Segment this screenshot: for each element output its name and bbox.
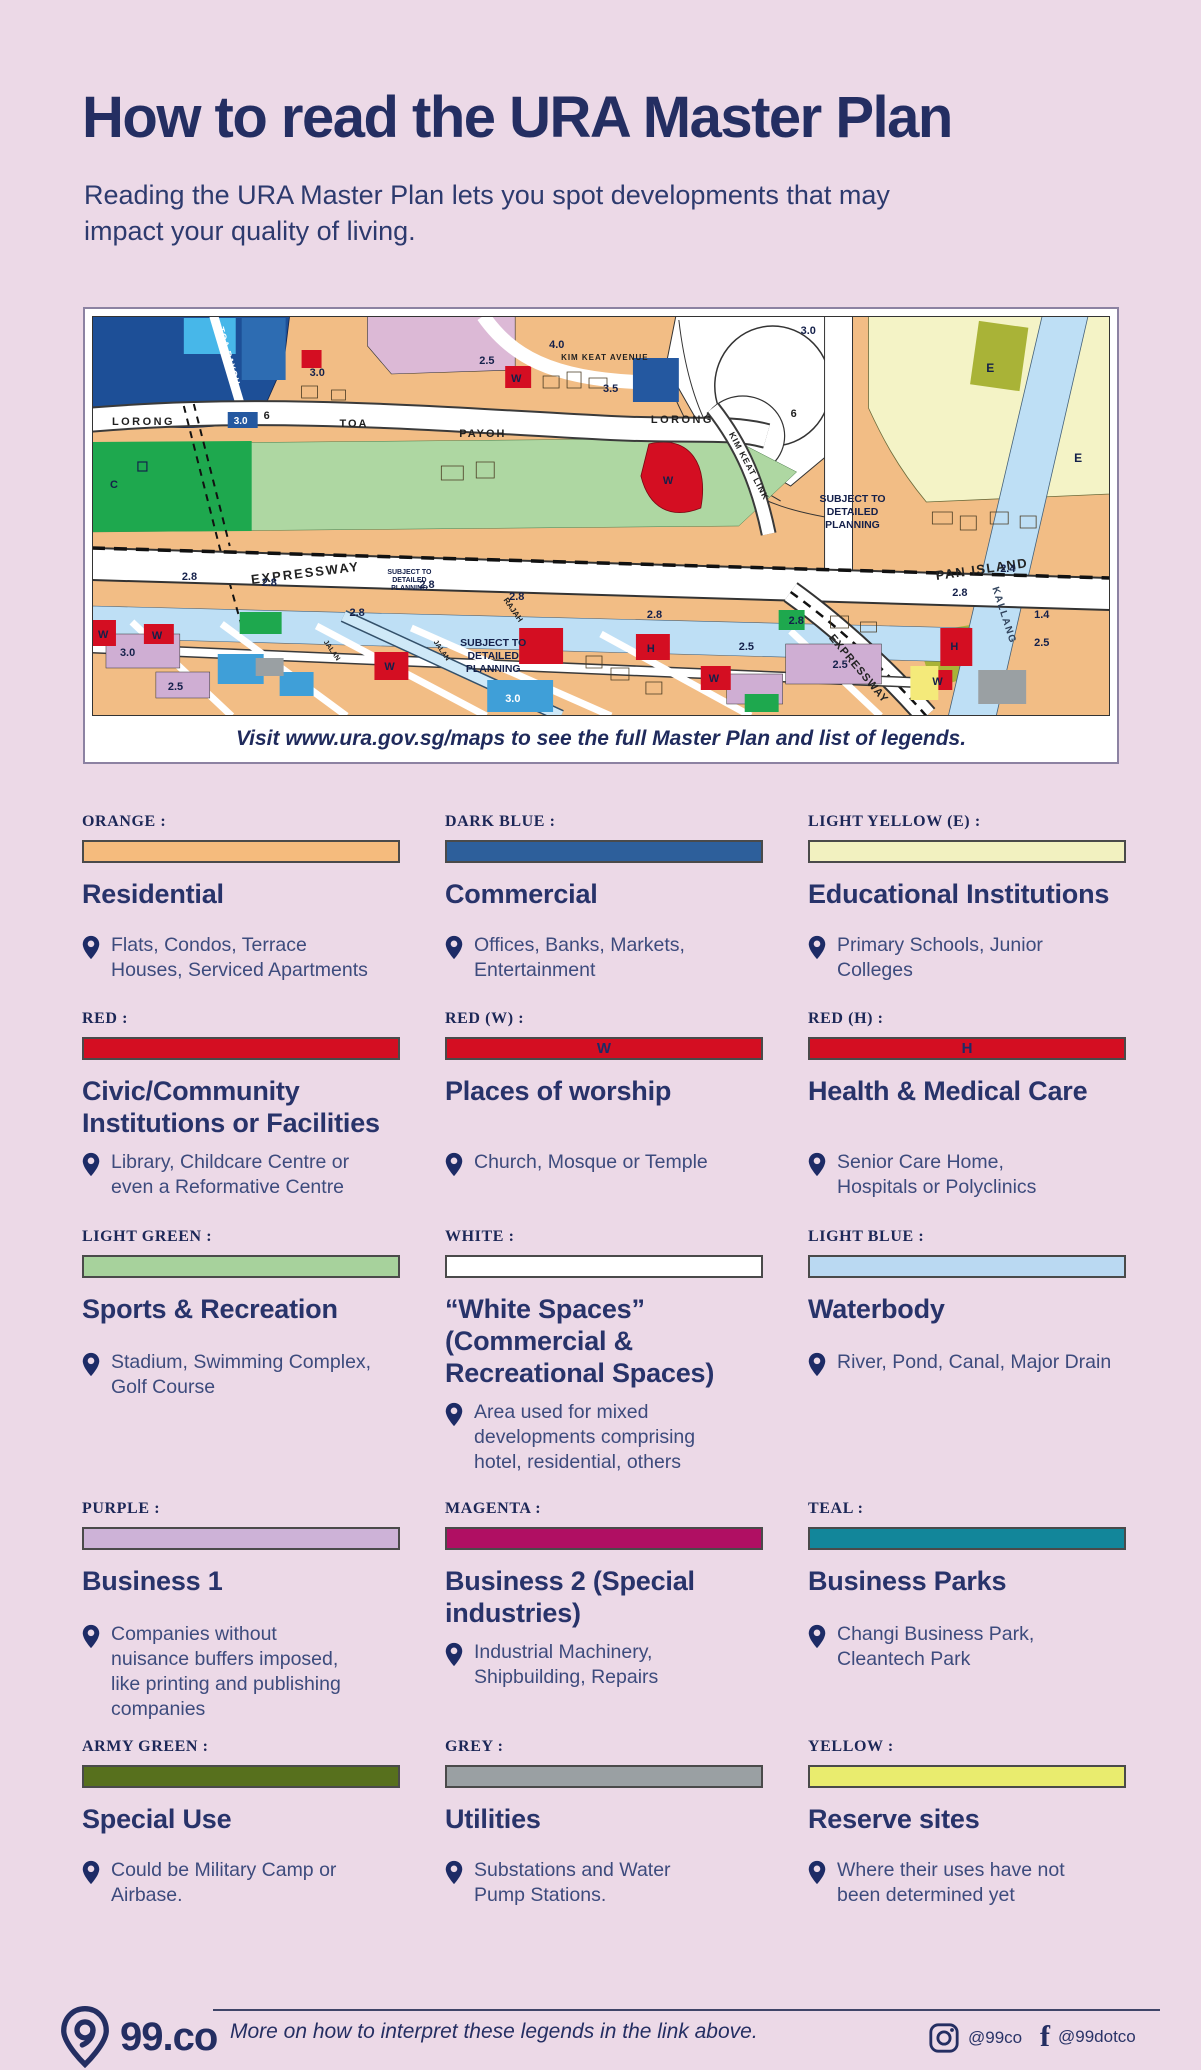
legend-item-description: Area used for mixed developments compris… xyxy=(445,1400,763,1475)
legend-item-description-text: Offices, Banks, Markets, Entertainment xyxy=(474,933,685,983)
svg-text:DETAILED: DETAILED xyxy=(467,651,519,662)
legend-item-residential: ORANGE : Residential Flats, Condos, Terr… xyxy=(82,813,400,983)
legend-item-title: Educational Institutions xyxy=(808,879,1126,923)
legend-color-name: ORANGE : xyxy=(82,813,400,831)
legend-item-educational: LIGHT YELLOW (E) : Educational Instituti… xyxy=(808,813,1126,983)
footer-note: More on how to interpret these legends i… xyxy=(230,2020,758,2044)
master-plan-map-panel: LORONG 6 TOA PAYOH LORONG 6 KIM KEAT AVE… xyxy=(83,307,1119,764)
legend-item-title: Commercial xyxy=(445,879,763,923)
location-pin-icon xyxy=(82,1352,100,1377)
legend-color-name: RED (H) : xyxy=(808,1010,1126,1028)
legend-color-swatch xyxy=(82,1765,400,1788)
legend-row-5: ARMY GREEN : Special Use Could be Milita… xyxy=(82,1738,1126,1908)
svg-text:3.0: 3.0 xyxy=(234,416,248,427)
location-pin-icon xyxy=(445,935,463,960)
svg-text:TOA: TOA xyxy=(340,418,369,430)
legend-item-business-1: PURPLE : Business 1 Companies without nu… xyxy=(82,1500,400,1722)
svg-text:LORONG: LORONG xyxy=(651,414,714,426)
facebook-icon: f xyxy=(1040,2022,1050,2052)
legend-item-title: Health & Medical Care xyxy=(808,1076,1126,1140)
location-pin-icon xyxy=(82,935,100,960)
instagram-handle: @99co xyxy=(968,2028,1022,2048)
legend-item-white-spaces: WHITE : “White Spaces” (Commercial & Rec… xyxy=(445,1228,763,1475)
legend-item-description-text: Stadium, Swimming Complex, Golf Course xyxy=(111,1350,371,1400)
legend-item-description-text: Could be Military Camp or Airbase. xyxy=(111,1858,336,1908)
facebook-social: f @99dotco xyxy=(1040,2022,1136,2052)
svg-text:W: W xyxy=(709,673,720,685)
legend-item-description-text: Area used for mixed developments compris… xyxy=(474,1400,695,1475)
legend-item-description: Where their uses have not been determine… xyxy=(808,1858,1126,1908)
legend-item-description-text: Primary Schools, Junior Colleges xyxy=(837,933,1043,983)
svg-text:2.8: 2.8 xyxy=(952,587,967,599)
legend-color-swatch xyxy=(808,1527,1126,1550)
footer-divider xyxy=(213,2009,1160,2011)
svg-text:SUBJECT TO: SUBJECT TO xyxy=(460,638,526,649)
legend-row-3: LIGHT GREEN : Sports & Recreation Stadiu… xyxy=(82,1228,1126,1475)
legend-item-title: Business 1 xyxy=(82,1566,400,1612)
location-pin-icon xyxy=(82,1152,100,1177)
svg-text:3.0: 3.0 xyxy=(801,325,816,337)
legend-item-description-text: River, Pond, Canal, Major Drain xyxy=(837,1350,1111,1375)
legend-item-description: Library, Childcare Centre or even a Refo… xyxy=(82,1150,400,1200)
legend-item-utilities: GREY : Utilities Substations and Water P… xyxy=(445,1738,763,1908)
legend-item-business-parks: TEAL : Business Parks Changi Business Pa… xyxy=(808,1500,1126,1722)
legend-item-title: Residential xyxy=(82,879,400,923)
legend-color-swatch xyxy=(82,840,400,863)
svg-text:PLANNING: PLANNING xyxy=(825,520,880,531)
legend-row-4: PURPLE : Business 1 Companies without nu… xyxy=(82,1500,1126,1722)
svg-text:DETAILED: DETAILED xyxy=(827,507,879,518)
legend-item-title: Business 2 (Special industries) xyxy=(445,1566,763,1630)
infographic-page: How to read the URA Master Plan Reading … xyxy=(0,0,1201,2070)
legend-item-title: Civic/Community Institutions or Faciliti… xyxy=(82,1076,400,1140)
svg-text:C: C xyxy=(110,479,118,491)
legend-item-title: Utilities xyxy=(445,1804,763,1848)
legend-item-description: Substations and Water Pump Stations. xyxy=(445,1858,763,1908)
map-caption: Visit www.ura.gov.sg/maps to see the ful… xyxy=(92,716,1110,762)
legend-item-sports: LIGHT GREEN : Sports & Recreation Stadiu… xyxy=(82,1228,400,1475)
legend-color-name: LIGHT BLUE : xyxy=(808,1228,1126,1246)
legend-item-civic: RED : Civic/Community Institutions or Fa… xyxy=(82,1010,400,1200)
location-pin-icon xyxy=(445,1860,463,1885)
legend-item-title: Business Parks xyxy=(808,1566,1126,1612)
legend-item-description-text: Library, Childcare Centre or even a Refo… xyxy=(111,1150,349,1200)
svg-text:H: H xyxy=(950,641,958,653)
svg-text:2.8: 2.8 xyxy=(349,607,364,619)
legend-item-title: Waterbody xyxy=(808,1294,1126,1340)
legend-color-swatch xyxy=(808,1255,1126,1278)
svg-text:2.5: 2.5 xyxy=(168,681,183,693)
svg-text:1.4: 1.4 xyxy=(1034,609,1050,621)
legend-item-description-text: Substations and Water Pump Stations. xyxy=(474,1858,671,1908)
legend-swatch-letter: W xyxy=(597,1041,611,1056)
location-pin-icon xyxy=(808,1860,826,1885)
svg-text:2.8: 2.8 xyxy=(509,591,524,603)
legend-color-swatch xyxy=(82,1527,400,1550)
legend-item-description-text: Changi Business Park, Cleantech Park xyxy=(837,1622,1034,1672)
svg-text:4.0: 4.0 xyxy=(549,339,564,351)
svg-text:LORONG: LORONG xyxy=(112,416,175,428)
svg-text:SUBJECT TO: SUBJECT TO xyxy=(819,494,885,505)
legend-item-description: Industrial Machinery, Shipbuilding, Repa… xyxy=(445,1640,763,1690)
svg-text:6: 6 xyxy=(791,408,797,420)
legend-swatch-letter: H xyxy=(962,1041,973,1056)
brand-name: 99.co xyxy=(120,2015,217,2060)
legend-color-name: GREY : xyxy=(445,1738,763,1756)
legend-item-business-2: MAGENTA : Business 2 (Special industries… xyxy=(445,1500,763,1722)
legend-item-description: Stadium, Swimming Complex, Golf Course xyxy=(82,1350,400,1400)
legend-item-description: Companies without nuisance buffers impos… xyxy=(82,1622,400,1722)
legend-color-name: PURPLE : xyxy=(82,1500,400,1518)
page-title: How to read the URA Master Plan xyxy=(82,84,952,151)
legend-color-name: YELLOW : xyxy=(808,1738,1126,1756)
svg-text:3.0: 3.0 xyxy=(120,647,135,659)
legend-item-description: Could be Military Camp or Airbase. xyxy=(82,1858,400,1908)
legend-item-description-text: Church, Mosque or Temple xyxy=(474,1150,708,1175)
svg-text:W: W xyxy=(511,373,522,385)
legend-item-description-text: Companies without nuisance buffers impos… xyxy=(111,1622,341,1722)
svg-text:2.5: 2.5 xyxy=(1034,637,1049,649)
legend-item-description-text: Where their uses have not been determine… xyxy=(837,1858,1065,1908)
svg-text:KIM KEAT AVENUE: KIM KEAT AVENUE xyxy=(561,353,649,362)
legend-item-description: Offices, Banks, Markets, Entertainment xyxy=(445,933,763,983)
legend-color-name: RED : xyxy=(82,1010,400,1028)
instagram-social: @99co xyxy=(928,2022,1022,2054)
svg-text:W: W xyxy=(384,661,395,673)
brand-logo: 99.co xyxy=(58,2006,217,2068)
legend-color-swatch xyxy=(82,1255,400,1278)
legend-item-reserve-sites: YELLOW : Reserve sites Where their uses … xyxy=(808,1738,1126,1908)
legend-color-swatch xyxy=(808,840,1126,863)
legend-item-description: Senior Care Home, Hospitals or Polyclini… xyxy=(808,1150,1126,1200)
svg-text:H: H xyxy=(647,643,655,655)
legend-item-waterbody: LIGHT BLUE : Waterbody River, Pond, Cana… xyxy=(808,1228,1126,1475)
svg-text:2.4: 2.4 xyxy=(1000,563,1016,575)
legend-color-swatch xyxy=(445,1527,763,1550)
svg-text:W: W xyxy=(932,676,943,688)
legend-color-swatch xyxy=(445,1765,763,1788)
location-pin-icon xyxy=(82,1624,100,1649)
location-pin-icon xyxy=(445,1152,463,1177)
location-pin-icon xyxy=(808,1624,826,1649)
svg-text:3.5: 3.5 xyxy=(603,383,618,395)
svg-text:PAYOH: PAYOH xyxy=(459,428,506,440)
svg-text:2.5: 2.5 xyxy=(739,641,754,653)
legend-item-description-text: Senior Care Home, Hospitals or Polyclini… xyxy=(837,1150,1036,1200)
legend-item-description-text: Industrial Machinery, Shipbuilding, Repa… xyxy=(474,1640,658,1690)
legend-item-commercial: DARK BLUE : Commercial Offices, Banks, M… xyxy=(445,813,763,983)
legend-color-name: RED (W) : xyxy=(445,1010,763,1028)
svg-text:3.0: 3.0 xyxy=(310,367,325,379)
legend-item-description-text: Flats, Condos, Terrace Houses, Serviced … xyxy=(111,933,368,983)
svg-text:2.8: 2.8 xyxy=(262,577,277,589)
page-subtitle: Reading the URA Master Plan lets you spo… xyxy=(84,178,904,249)
location-pin-icon xyxy=(808,1352,826,1377)
svg-text:E: E xyxy=(986,361,994,375)
legend-color-swatch xyxy=(808,1765,1126,1788)
location-pin-icon xyxy=(445,1402,463,1427)
svg-text:3.0: 3.0 xyxy=(505,693,520,705)
legend-item-title: “White Spaces” (Commercial & Recreationa… xyxy=(445,1294,763,1390)
legend-color-swatch xyxy=(445,840,763,863)
legend-item-description: River, Pond, Canal, Major Drain xyxy=(808,1350,1126,1377)
location-pin-icon xyxy=(808,935,826,960)
svg-text:2.8: 2.8 xyxy=(419,579,434,591)
legend-row-2: RED : Civic/Community Institutions or Fa… xyxy=(82,1010,1126,1200)
legend-row-1: ORANGE : Residential Flats, Condos, Terr… xyxy=(82,813,1126,983)
svg-text:PLANNING: PLANNING xyxy=(466,664,521,675)
master-plan-map: LORONG 6 TOA PAYOH LORONG 6 KIM KEAT AVE… xyxy=(92,316,1110,716)
legend-item-description: Church, Mosque or Temple xyxy=(445,1150,763,1177)
legend-color-name: DARK BLUE : xyxy=(445,813,763,831)
svg-text:2.8: 2.8 xyxy=(789,615,804,627)
legend-color-swatch xyxy=(82,1037,400,1060)
legend-item-title: Reserve sites xyxy=(808,1804,1126,1848)
svg-text:W: W xyxy=(663,475,674,487)
legend-item-title: Special Use xyxy=(82,1804,400,1848)
legend-color-name: LIGHT YELLOW (E) : xyxy=(808,813,1126,831)
legend-color-name: TEAL : xyxy=(808,1500,1126,1518)
legend-color-swatch: H xyxy=(808,1037,1126,1060)
svg-text:W: W xyxy=(98,629,109,641)
facebook-handle: @99dotco xyxy=(1058,2027,1136,2047)
location-pin-icon xyxy=(445,1642,463,1667)
legend-color-swatch: W xyxy=(445,1037,763,1060)
legend-color-name: LIGHT GREEN : xyxy=(82,1228,400,1246)
legend-item-worship: RED (W) : W Places of worship Church, Mo… xyxy=(445,1010,763,1200)
legend-color-name: WHITE : xyxy=(445,1228,763,1246)
legend-item-title: Places of worship xyxy=(445,1076,763,1140)
svg-text:2.5: 2.5 xyxy=(479,355,494,367)
legend-item-title: Sports & Recreation xyxy=(82,1294,400,1340)
svg-text:W: W xyxy=(152,630,163,642)
instagram-icon xyxy=(928,2022,960,2054)
legend-item-description: Changi Business Park, Cleantech Park xyxy=(808,1622,1126,1672)
location-pin-icon xyxy=(808,1152,826,1177)
legend-color-name: MAGENTA : xyxy=(445,1500,763,1518)
svg-text:E: E xyxy=(1074,451,1082,465)
legend-item-description: Flats, Condos, Terrace Houses, Serviced … xyxy=(82,933,400,983)
svg-text:6: 6 xyxy=(264,410,270,422)
svg-text:2.8: 2.8 xyxy=(182,571,197,583)
legend-item-description: Primary Schools, Junior Colleges xyxy=(808,933,1126,983)
legend-item-special-use: ARMY GREEN : Special Use Could be Milita… xyxy=(82,1738,400,1908)
legend-color-swatch xyxy=(445,1255,763,1278)
svg-text:2.8: 2.8 xyxy=(647,609,662,621)
location-pin-icon xyxy=(82,1860,100,1885)
legend-item-health: RED (H) : H Health & Medical Care Senior… xyxy=(808,1010,1126,1200)
99co-pin-logo-icon xyxy=(58,2006,112,2068)
legend-color-name: ARMY GREEN : xyxy=(82,1738,400,1756)
svg-text:SUBJECT TO: SUBJECT TO xyxy=(387,569,432,576)
svg-text:2.5: 2.5 xyxy=(833,659,848,671)
